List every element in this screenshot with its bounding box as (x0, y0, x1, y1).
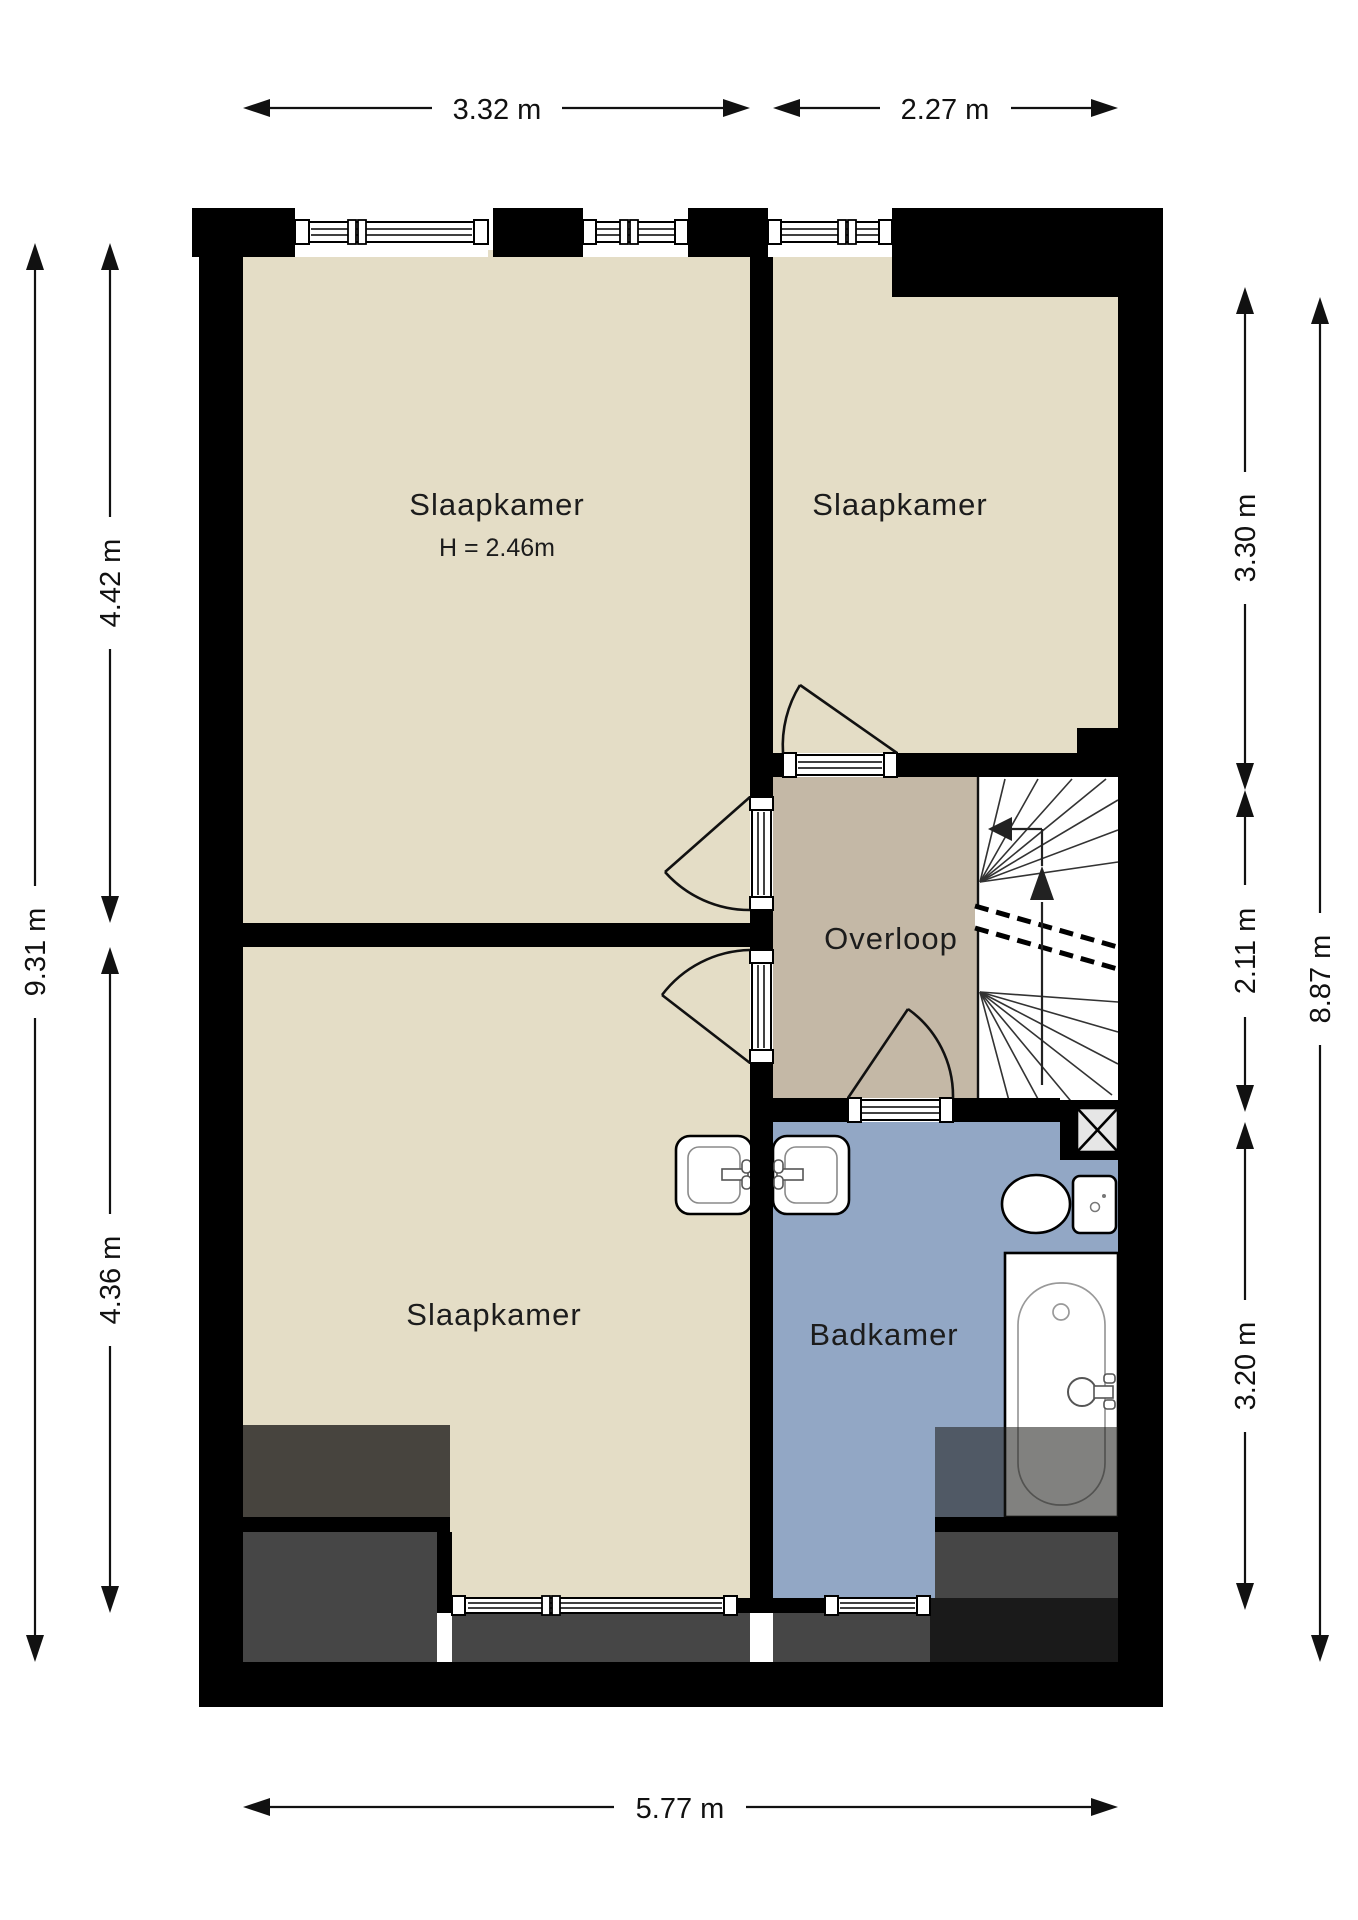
knee-wall-return (437, 1532, 452, 1613)
wall-landing-bottom-a (773, 1098, 848, 1122)
svg-text:3.20 m: 3.20 m (1230, 1322, 1262, 1411)
landing-label: Overloop (824, 921, 958, 956)
wall-top-pier-left (192, 208, 295, 257)
overlay-bedroom-floor (243, 1425, 450, 1517)
wall-stairwell-bottom (978, 1112, 1060, 1122)
wall-exterior-right (1118, 208, 1163, 1707)
overlay-eaves-left (243, 1532, 437, 1662)
svg-text:9.31 m: 9.31 m (20, 908, 52, 997)
dimension-bottom-width: 5.77 m (243, 1793, 1118, 1825)
wall-bedrooms-horizontal (243, 923, 750, 947)
wall-top-pier-right (688, 208, 768, 257)
svg-text:4.36 m: 4.36 m (95, 1236, 127, 1325)
wall-divider-vertical-lower (750, 1063, 773, 1613)
wall-top-right-corner (892, 208, 1163, 297)
dimension-right-middle-height: 2.11 m (1230, 790, 1262, 1112)
svg-text:2.27 m: 2.27 m (901, 94, 990, 126)
knee-wall (243, 1517, 450, 1532)
floor-plan: Slaapkamer H = 2.46m Slaapkamer Slaapkam… (0, 0, 1358, 1920)
sink-icon-left (676, 1136, 752, 1214)
window-top-left (295, 208, 488, 257)
wall-top-pier-middle (493, 208, 583, 257)
window-bottom-bathroom (825, 1596, 930, 1615)
dimension-top-left-width: 3.32 m (243, 94, 750, 126)
svg-text:8.87 m: 8.87 m (1305, 935, 1337, 1024)
ventilation-shaft-icon (1077, 1108, 1118, 1152)
knee-wall-bath (935, 1517, 1118, 1532)
wall-notch-stairwell (1077, 728, 1118, 757)
bedroom-top-right-label: Slaapkamer (812, 487, 987, 522)
floor-plan-page: Slaapkamer H = 2.46m Slaapkamer Slaapkam… (0, 0, 1358, 1920)
svg-text:5.77 m: 5.77 m (636, 1793, 725, 1825)
window-bottom-bedroom (452, 1596, 737, 1615)
dimension-left-total-height: 9.31 m (20, 243, 52, 1662)
svg-text:3.30 m: 3.30 m (1230, 494, 1262, 583)
overlay-eaves-center (452, 1613, 750, 1662)
svg-text:2.11 m: 2.11 m (1230, 908, 1262, 995)
dimension-right-total-height: 8.87 m (1305, 297, 1337, 1662)
overlay-corner-bath (930, 1598, 1118, 1662)
wall-bedroom2-bottom-a (773, 753, 783, 777)
dimension-right-upper-height: 3.30 m (1230, 287, 1262, 790)
bedroom-top-left-height-note: H = 2.46m (439, 534, 555, 562)
overlay-eaves-bath-right (935, 1532, 1118, 1598)
wall-window-pier-a (737, 1598, 750, 1613)
overlay-bathtub-zone (935, 1427, 1118, 1517)
dimension-left-upper-height: 4.42 m (95, 243, 127, 923)
bedroom-bottom-left-label: Slaapkamer (406, 1297, 581, 1332)
wall-window-pier-b (773, 1598, 825, 1613)
toilet-icon (1002, 1175, 1116, 1233)
dimension-left-lower-height: 4.36 m (95, 947, 127, 1613)
dimension-top-right-width: 2.27 m (773, 94, 1118, 126)
svg-text:3.32 m: 3.32 m (453, 94, 542, 126)
wall-divider-vertical-upper (750, 250, 773, 797)
dimension-right-lower-height: 3.20 m (1230, 1122, 1262, 1610)
bathroom-label: Badkamer (809, 1317, 958, 1352)
svg-text:4.42 m: 4.42 m (95, 539, 127, 628)
overlay-eaves-bath (773, 1613, 930, 1662)
sink-icon-right (773, 1136, 849, 1214)
bedroom-top-left-label: Slaapkamer (409, 487, 584, 522)
wall-divider-vertical-middle (750, 910, 773, 950)
wall-exterior-left (199, 208, 243, 1707)
wall-exterior-bottom (199, 1662, 1163, 1707)
room-bedroom-top-left-floor (243, 250, 750, 923)
window-top-middle (583, 208, 688, 257)
window-top-right (768, 208, 892, 257)
